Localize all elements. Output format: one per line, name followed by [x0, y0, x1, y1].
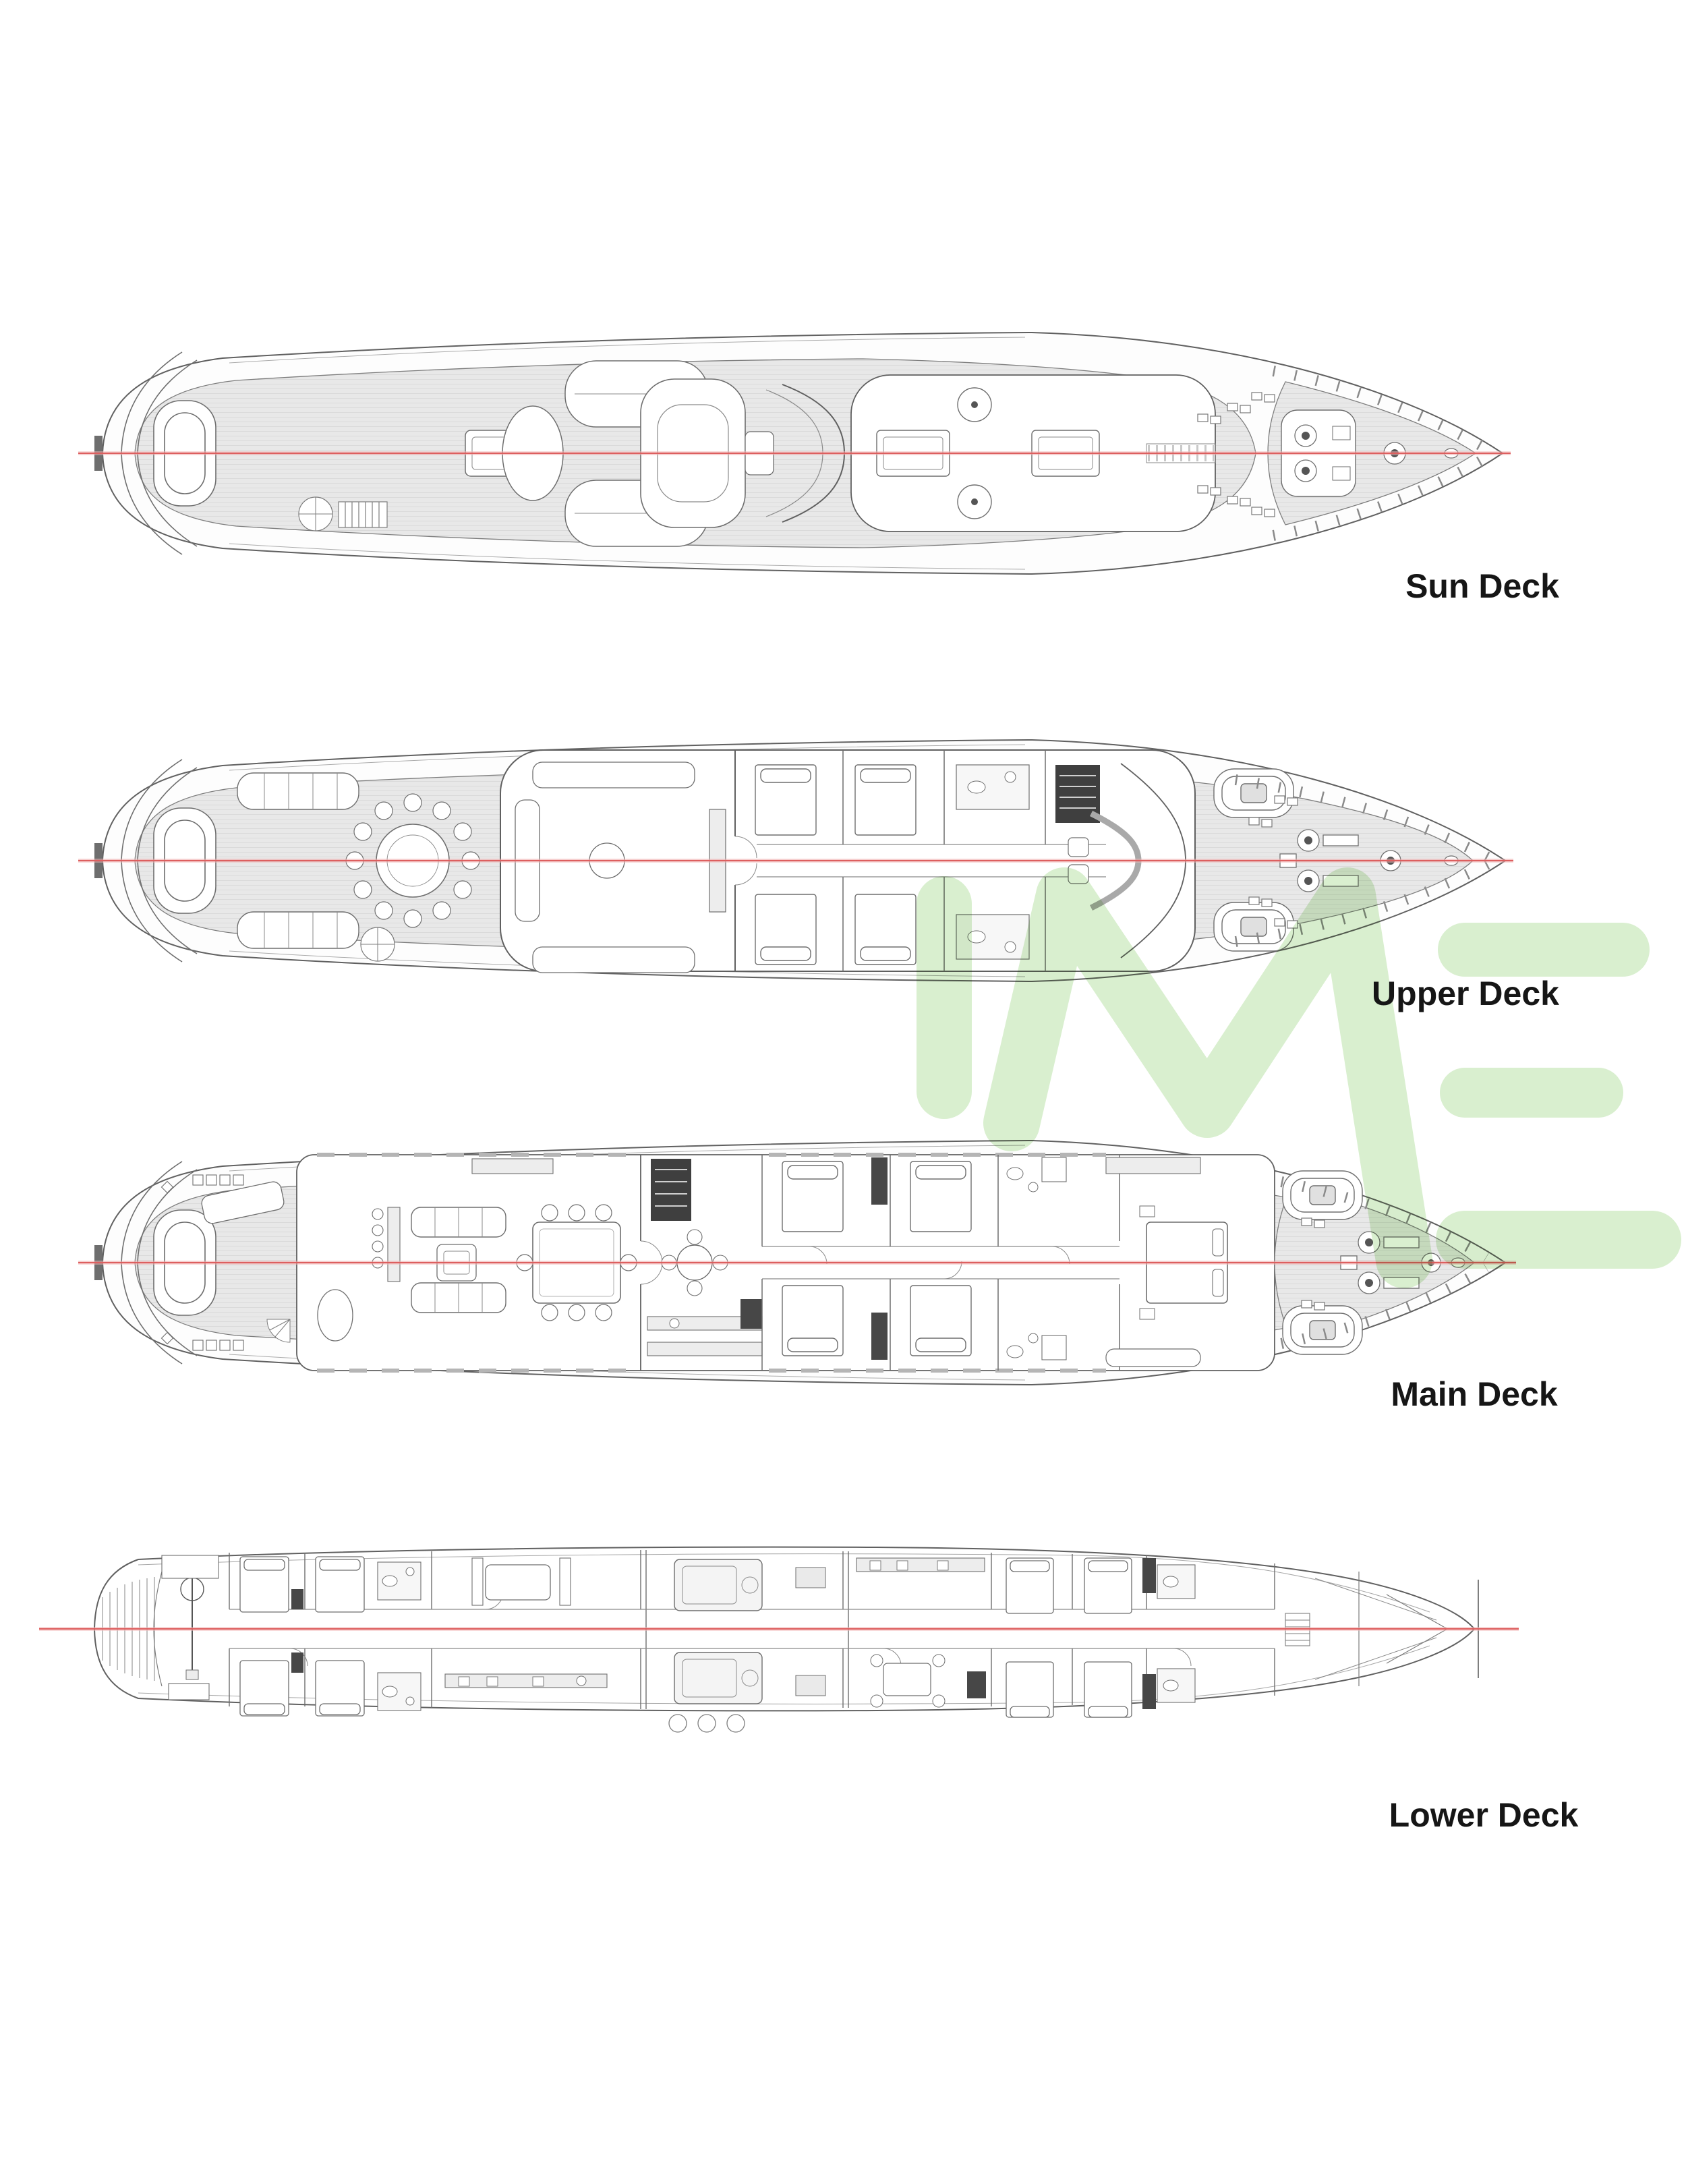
- main-deck-plan: [78, 1141, 1516, 1385]
- lower-deck-plan: [39, 1547, 1519, 1732]
- upper-deck-plan: [78, 740, 1513, 981]
- yacht-deck-plans-page: Sun Deck Upper Deck Main Deck Lower Deck: [0, 0, 1686, 2184]
- upper-deck-label: Upper Deck: [1372, 977, 1559, 1010]
- deck-plans-drawing: [0, 0, 1686, 2184]
- lower-deck-label: Lower Deck: [1389, 1798, 1579, 1832]
- sun-deck-plan: [78, 333, 1511, 574]
- main-deck-label: Main Deck: [1391, 1377, 1557, 1411]
- sun-deck-label: Sun Deck: [1405, 569, 1559, 603]
